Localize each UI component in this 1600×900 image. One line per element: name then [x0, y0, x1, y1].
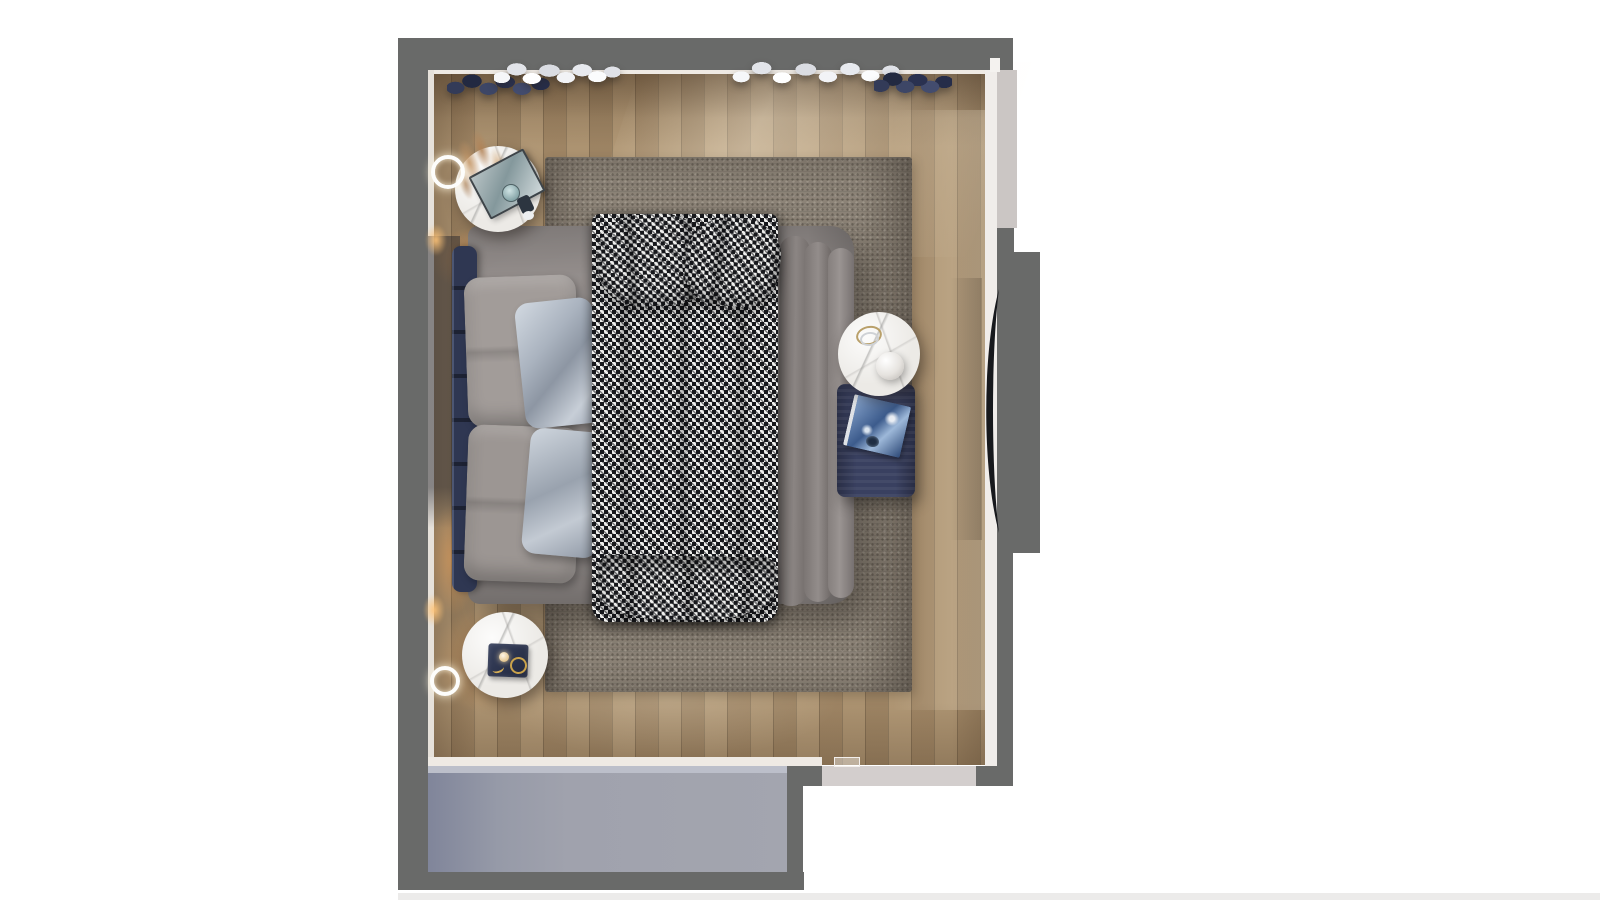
skirting-bottom: [428, 757, 822, 766]
mini-lamp: [499, 652, 509, 662]
wall-right-upper: [997, 228, 1014, 254]
pillow-satin-top: [514, 296, 605, 429]
clothes-rail-left-white: [494, 50, 620, 96]
lower-slab: [428, 766, 787, 872]
wall-glow-upper: [425, 224, 447, 256]
window-right: [997, 70, 1017, 228]
sphere-bowl-lamp: [876, 352, 904, 380]
wall-ring-light-bottom: [430, 666, 460, 696]
wall-bottom: [398, 872, 804, 890]
small-dish: [523, 211, 534, 220]
bottom-edge-strip: [398, 893, 1600, 900]
door-leaf-marker: [834, 757, 860, 767]
corner-notch: [990, 58, 1000, 72]
wall-corner-bottom-right: [976, 766, 1013, 786]
wall-right-lower: [997, 553, 1013, 768]
wall-glow-lower: [423, 594, 445, 626]
clothes-rail-right-navy: [874, 58, 952, 106]
bedroom-top-view-render: [0, 0, 1600, 900]
tv-panel: [977, 287, 999, 535]
wall-stub-horizontal: [787, 766, 822, 786]
wall-stub-vertical: [787, 786, 803, 890]
door-opening-threshold: [822, 766, 976, 786]
side-table-marble: [838, 312, 920, 396]
lower-slab-edge: [428, 766, 787, 773]
wall-left: [398, 38, 428, 890]
wall-ring-light-top: [431, 155, 465, 189]
houndstooth-gathered-end: [597, 554, 776, 621]
wall-right-thick: [997, 252, 1040, 553]
